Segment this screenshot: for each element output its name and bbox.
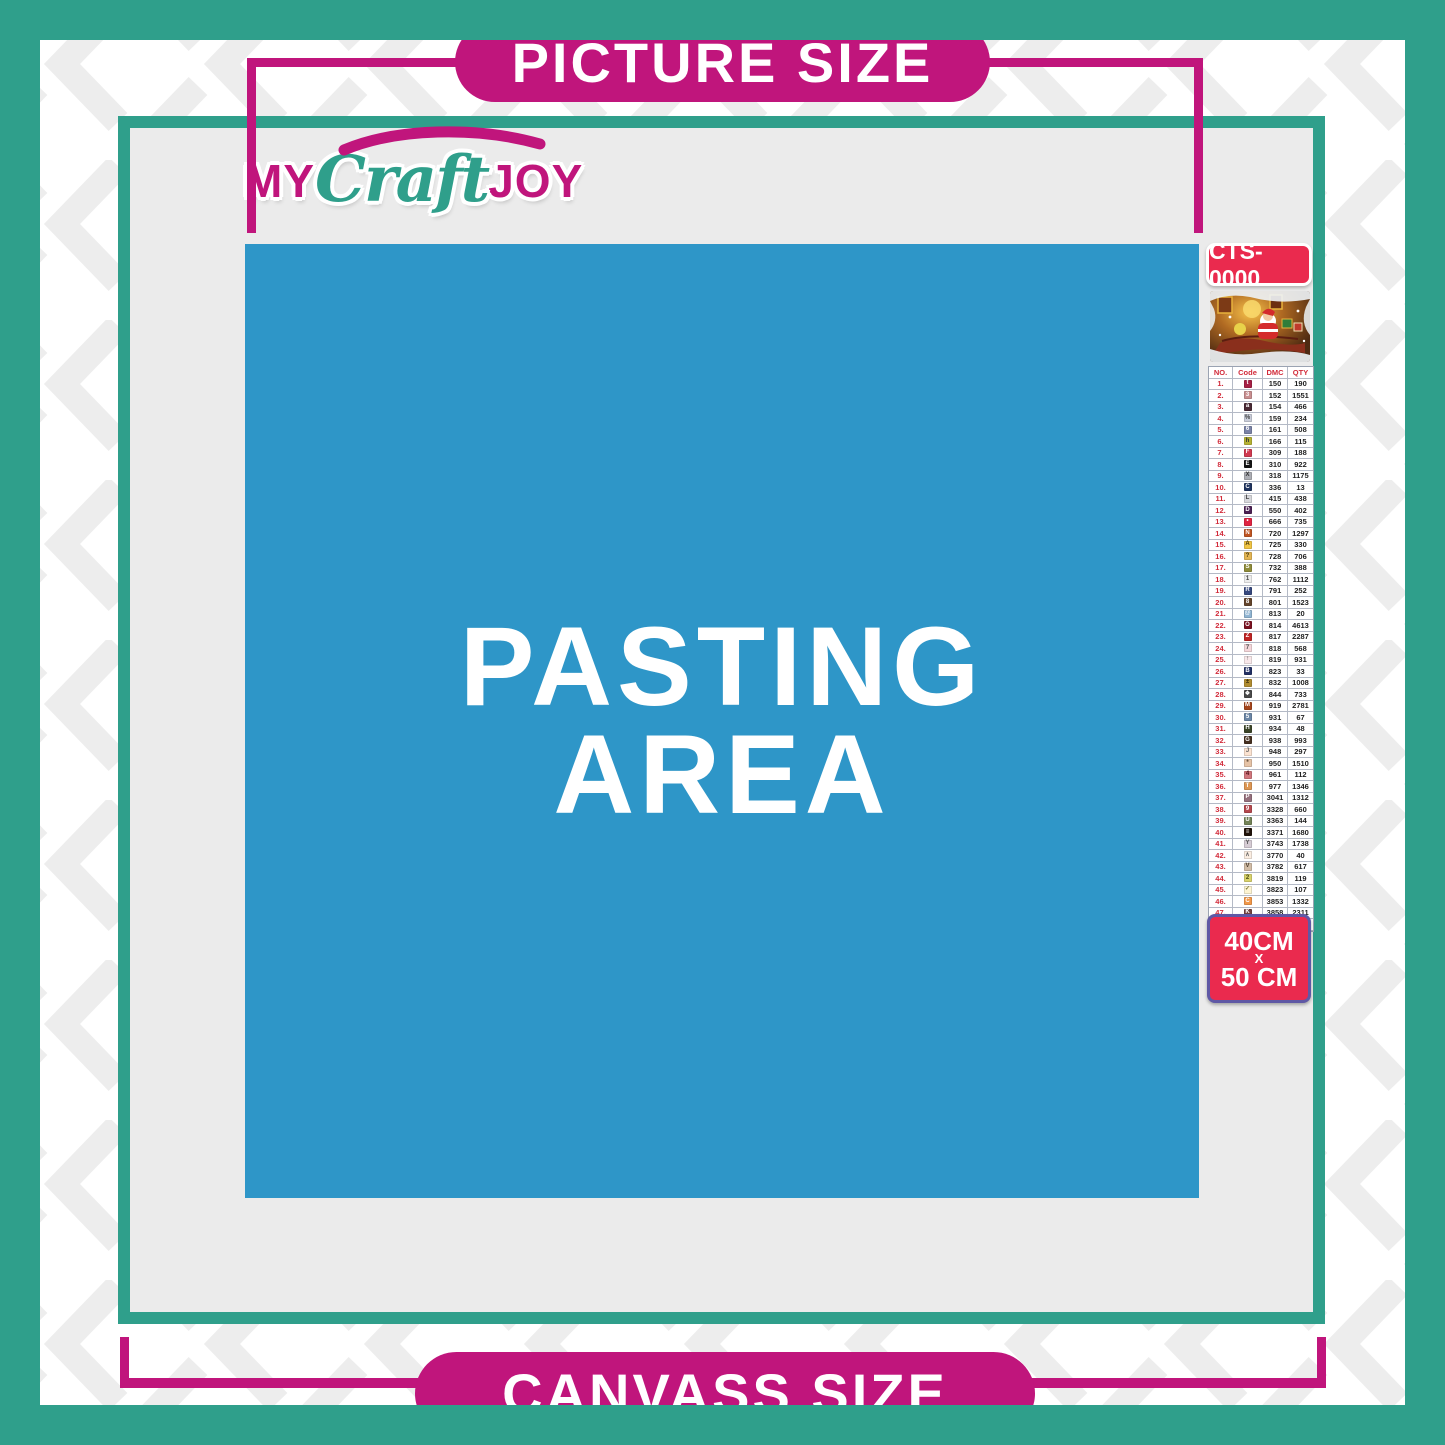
qty-cell: 922 [1288,459,1313,471]
row-number: 43. [1209,862,1233,874]
qty-cell: 2781 [1288,701,1313,713]
qty-cell: 1008 [1288,678,1313,690]
dmc-cell: 159 [1263,413,1288,425]
symbol-chip: 9 [1244,805,1252,813]
row-number: 2. [1209,390,1233,402]
row-number: 46. [1209,896,1233,908]
qty-cell: 735 [1288,517,1313,529]
symbol-chip: D [1244,506,1252,514]
dmc-cell: 318 [1263,471,1288,483]
symbol-chip: ✓ [1244,886,1252,894]
dmc-cell: 310 [1263,459,1288,471]
qty-cell: 1297 [1288,528,1313,540]
dmc-cell: 961 [1263,770,1288,782]
pasting-area: PASTING AREA [245,244,1199,1198]
qty-cell: 508 [1288,425,1313,437]
row-number: 37. [1209,793,1233,805]
row-number: 19. [1209,586,1233,598]
qty-cell: 706 [1288,551,1313,563]
dmc-cell: 720 [1263,528,1288,540]
row-number: 34. [1209,758,1233,770]
symbol-chip: M [1244,702,1252,710]
row-number: 3. [1209,402,1233,414]
qty-cell: 115 [1288,436,1313,448]
row-number: 20. [1209,597,1233,609]
qty-cell: 107 [1288,885,1313,897]
symbol-chip: R [1244,587,1252,595]
dmc-cell: 3371 [1263,827,1288,839]
code-cell: J [1233,747,1263,759]
code-cell: M [1233,701,1263,713]
code-cell: a [1233,402,1263,414]
symbol-chip: • [1244,518,1252,526]
dmc-cell: 938 [1263,735,1288,747]
qty-cell: 190 [1288,379,1313,391]
qty-cell: 330 [1288,540,1313,552]
dmc-cell: 3041 [1263,793,1288,805]
code-cell: 2 [1233,873,1263,885]
code-cell: D [1233,505,1263,517]
dmc-cell: 950 [1263,758,1288,770]
dmc-cell: 550 [1263,505,1288,517]
symbol-chip: 5 [1244,713,1252,721]
dmc-cell: 166 [1263,436,1288,448]
symbol-chip: J [1244,748,1252,756]
canvass-size-label-pill: CANVASS SIZE [415,1352,1035,1435]
code-cell: 4 [1233,770,1263,782]
row-number: 29. [1209,701,1233,713]
design-preview-thumbnail [1210,291,1310,362]
dmc-cell: 336 [1263,482,1288,494]
code-cell: V [1233,862,1263,874]
qty-cell: 466 [1288,402,1313,414]
code-cell: * [1233,758,1263,770]
row-number: 41. [1209,839,1233,851]
row-number: 8. [1209,459,1233,471]
symbol-chip: L [1244,495,1252,503]
code-cell: 8 [1233,597,1263,609]
dmc-cell: 931 [1263,712,1288,724]
symbol-chip: 3 [1244,391,1252,399]
picture-size-label-pill: PICTURE SIZE [455,22,990,102]
symbol-chip: B [1244,667,1252,675]
qty-cell: 20 [1288,609,1313,621]
symbol-chip: O [1244,621,1252,629]
symbol-chip: ∧ [1244,851,1252,859]
code-cell: E [1233,459,1263,471]
row-number: 17. [1209,563,1233,575]
code-cell: ± [1233,678,1263,690]
dmc-cell: 762 [1263,574,1288,586]
code-cell: 7 [1233,643,1263,655]
row-number: 27. [1209,678,1233,690]
qty-cell: 112 [1288,770,1313,782]
dmc-cell: 728 [1263,551,1288,563]
symbol-chip: C [1244,897,1252,905]
row-number: 22. [1209,620,1233,632]
table-header-dmc: DMC [1263,367,1288,379]
dmc-cell: 3328 [1263,804,1288,816]
dmc-cell: 309 [1263,448,1288,460]
row-number: 7. [1209,448,1233,460]
pasting-area-line2: AREA [553,721,890,829]
qty-cell: 617 [1288,862,1313,874]
row-number: 42. [1209,850,1233,862]
dmc-cell: 150 [1263,379,1288,391]
dmc-cell: 154 [1263,402,1288,414]
symbol-chip: a [1244,403,1252,411]
dmc-cell: 3782 [1263,862,1288,874]
qty-cell: 1551 [1288,390,1313,402]
code-cell: X [1233,471,1263,483]
qty-cell: 13 [1288,482,1313,494]
qty-cell: 568 [1288,643,1313,655]
symbol-chip: Y [1244,840,1252,848]
code-cell: h [1233,436,1263,448]
dmc-cell: 3770 [1263,850,1288,862]
dmc-cell: 832 [1263,678,1288,690]
symbol-chip: P [1244,794,1252,802]
qty-cell: 234 [1288,413,1313,425]
code-cell: ✓ [1233,885,1263,897]
qty-cell: 67 [1288,712,1313,724]
qty-cell: 1680 [1288,827,1313,839]
row-number: 40. [1209,827,1233,839]
code-cell: L [1233,494,1263,506]
row-number: 5. [1209,425,1233,437]
sku-text: CTS-0000 [1209,238,1309,292]
code-cell: 9 [1233,804,1263,816]
row-number: 45. [1209,885,1233,897]
code-cell: G [1233,735,1263,747]
dmc-cell: 934 [1263,724,1288,736]
dmc-legend-table: NO. Code DMC QTY 1.t1501902.315215513.a1… [1208,366,1314,932]
symbol-chip: @ [1244,610,1252,618]
row-number: 33. [1209,747,1233,759]
dmc-cell: 666 [1263,517,1288,529]
symbol-chip: ± [1244,679,1252,687]
dmc-cell: 819 [1263,655,1288,667]
symbol-chip: ? [1244,552,1252,560]
row-number: 14. [1209,528,1233,540]
row-number: 23. [1209,632,1233,644]
row-number: 35. [1209,770,1233,782]
symbol-chip: A [1244,541,1252,549]
size-line1: 40CM [1224,929,1293,953]
code-cell: N [1233,528,1263,540]
pasting-area-line1: PASTING [460,613,985,721]
dmc-cell: 3363 [1263,816,1288,828]
qty-cell: 188 [1288,448,1313,460]
symbol-chip: H [1244,725,1252,733]
row-number: 11. [1209,494,1233,506]
dmc-cell: 732 [1263,563,1288,575]
code-cell: S [1233,563,1263,575]
qty-cell: 33 [1288,666,1313,678]
row-number: 12. [1209,505,1233,517]
table-header-qty: QTY [1288,367,1313,379]
code-cell: ≡ [1233,827,1263,839]
symbol-chip: F [1244,449,1252,457]
dmc-cell: 791 [1263,586,1288,598]
row-number: 38. [1209,804,1233,816]
code-cell: 1 [1233,574,1263,586]
code-cell: C [1233,896,1263,908]
symbol-chip: 4 [1244,771,1252,779]
code-cell: B [1233,666,1263,678]
symbol-chip: t [1244,380,1252,388]
qty-cell: 252 [1288,586,1313,598]
code-cell: Y [1233,839,1263,851]
qty-cell: 2287 [1288,632,1313,644]
picture-size-label: PICTURE SIZE [512,30,934,95]
dmc-cell: 3819 [1263,873,1288,885]
code-cell: ↑ [1233,655,1263,667]
code-cell: O [1233,620,1263,632]
symbol-chip: 2 [1244,874,1252,882]
symbol-chip: Z [1244,633,1252,641]
row-number: 18. [1209,574,1233,586]
symbol-chip: 7 [1244,644,1252,652]
symbol-chip: V [1244,863,1252,871]
row-number: 15. [1209,540,1233,552]
table-header-no: NO. [1209,367,1233,379]
code-cell: A [1233,540,1263,552]
dmc-cell: 725 [1263,540,1288,552]
dmc-cell: 3853 [1263,896,1288,908]
code-cell: P [1233,793,1263,805]
symbol-chip: ❖ [1244,690,1252,698]
row-number: 32. [1209,735,1233,747]
row-number: 24. [1209,643,1233,655]
code-cell: 6 [1233,425,1263,437]
dmc-cell: 823 [1263,666,1288,678]
symbol-chip: % [1244,414,1252,422]
qty-cell: 4613 [1288,620,1313,632]
dmc-cell: 813 [1263,609,1288,621]
symbol-chip: E [1244,460,1252,468]
row-number: 21. [1209,609,1233,621]
code-cell: ? [1233,551,1263,563]
code-cell: ∧ [1233,850,1263,862]
row-number: 44. [1209,873,1233,885]
symbol-chip: 6 [1244,426,1252,434]
qty-cell: 1738 [1288,839,1313,851]
dmc-cell: 977 [1263,781,1288,793]
canvass-size-label: CANVASS SIZE [502,1361,948,1426]
row-number: 16. [1209,551,1233,563]
dmc-cell: 919 [1263,701,1288,713]
qty-cell: 993 [1288,735,1313,747]
row-number: 4. [1209,413,1233,425]
row-number: 31. [1209,724,1233,736]
dmc-cell: 3743 [1263,839,1288,851]
table-header-code: Code [1233,367,1263,379]
code-cell: U [1233,816,1263,828]
row-number: 28. [1209,689,1233,701]
symbol-chip: h [1244,437,1252,445]
code-cell: % [1233,413,1263,425]
qty-cell: 40 [1288,850,1313,862]
qty-cell: 1510 [1288,758,1313,770]
qty-cell: 1312 [1288,793,1313,805]
qty-cell: 119 [1288,873,1313,885]
qty-cell: 388 [1288,563,1313,575]
row-number: 25. [1209,655,1233,667]
dmc-cell: 152 [1263,390,1288,402]
code-cell: T [1233,781,1263,793]
symbol-chip: 1 [1244,575,1252,583]
code-cell: • [1233,517,1263,529]
row-number: 9. [1209,471,1233,483]
qty-cell: 48 [1288,724,1313,736]
symbol-chip: T [1244,782,1252,790]
qty-cell: 1346 [1288,781,1313,793]
symbol-chip: * [1244,759,1252,767]
symbol-chip: N [1244,529,1252,537]
qty-cell: 1112 [1288,574,1313,586]
dmc-cell: 161 [1263,425,1288,437]
code-cell: @ [1233,609,1263,621]
row-number: 36. [1209,781,1233,793]
qty-cell: 402 [1288,505,1313,517]
symbol-chip: G [1244,736,1252,744]
row-number: 10. [1209,482,1233,494]
symbol-chip: ≡ [1244,828,1252,836]
symbol-chip: 8 [1244,598,1252,606]
santa-scene-image [1210,291,1310,362]
qty-cell: 1332 [1288,896,1313,908]
qty-cell: 733 [1288,689,1313,701]
symbol-chip: ↑ [1244,656,1252,664]
qty-cell: 660 [1288,804,1313,816]
code-cell: R [1233,586,1263,598]
code-cell: H [1233,724,1263,736]
symbol-chip: U [1244,817,1252,825]
symbol-chip: S [1244,564,1252,572]
qty-cell: 297 [1288,747,1313,759]
row-number: 1. [1209,379,1233,391]
dmc-cell: 817 [1263,632,1288,644]
code-cell: 3 [1233,390,1263,402]
qty-cell: 1523 [1288,597,1313,609]
dmc-cell: 844 [1263,689,1288,701]
dmc-cell: 3823 [1263,885,1288,897]
symbol-chip: X [1244,472,1252,480]
dmc-cell: 814 [1263,620,1288,632]
dmc-cell: 415 [1263,494,1288,506]
code-cell: 5 [1233,712,1263,724]
qty-cell: 438 [1288,494,1313,506]
size-line3: 50 CM [1221,965,1298,989]
code-cell: t [1233,379,1263,391]
qty-cell: 144 [1288,816,1313,828]
row-number: 13. [1209,517,1233,529]
dmc-cell: 948 [1263,747,1288,759]
dmc-cell: 818 [1263,643,1288,655]
code-cell: Z [1233,632,1263,644]
code-cell: F [1233,448,1263,460]
dmc-cell: 801 [1263,597,1288,609]
row-number: 39. [1209,816,1233,828]
sku-badge: CTS-0000 [1206,243,1312,286]
code-cell: ❖ [1233,689,1263,701]
code-cell: C [1233,482,1263,494]
symbol-chip: C [1244,483,1252,491]
row-number: 30. [1209,712,1233,724]
poster-canvas-size-guide: PASTING AREA MYCraftJOY PICTURE SIZE CAN… [0,0,1445,1445]
qty-cell: 931 [1288,655,1313,667]
qty-cell: 1175 [1288,471,1313,483]
row-number: 6. [1209,436,1233,448]
row-number: 26. [1209,666,1233,678]
canvas-size-badge: 40CM X 50 CM [1207,914,1311,1003]
